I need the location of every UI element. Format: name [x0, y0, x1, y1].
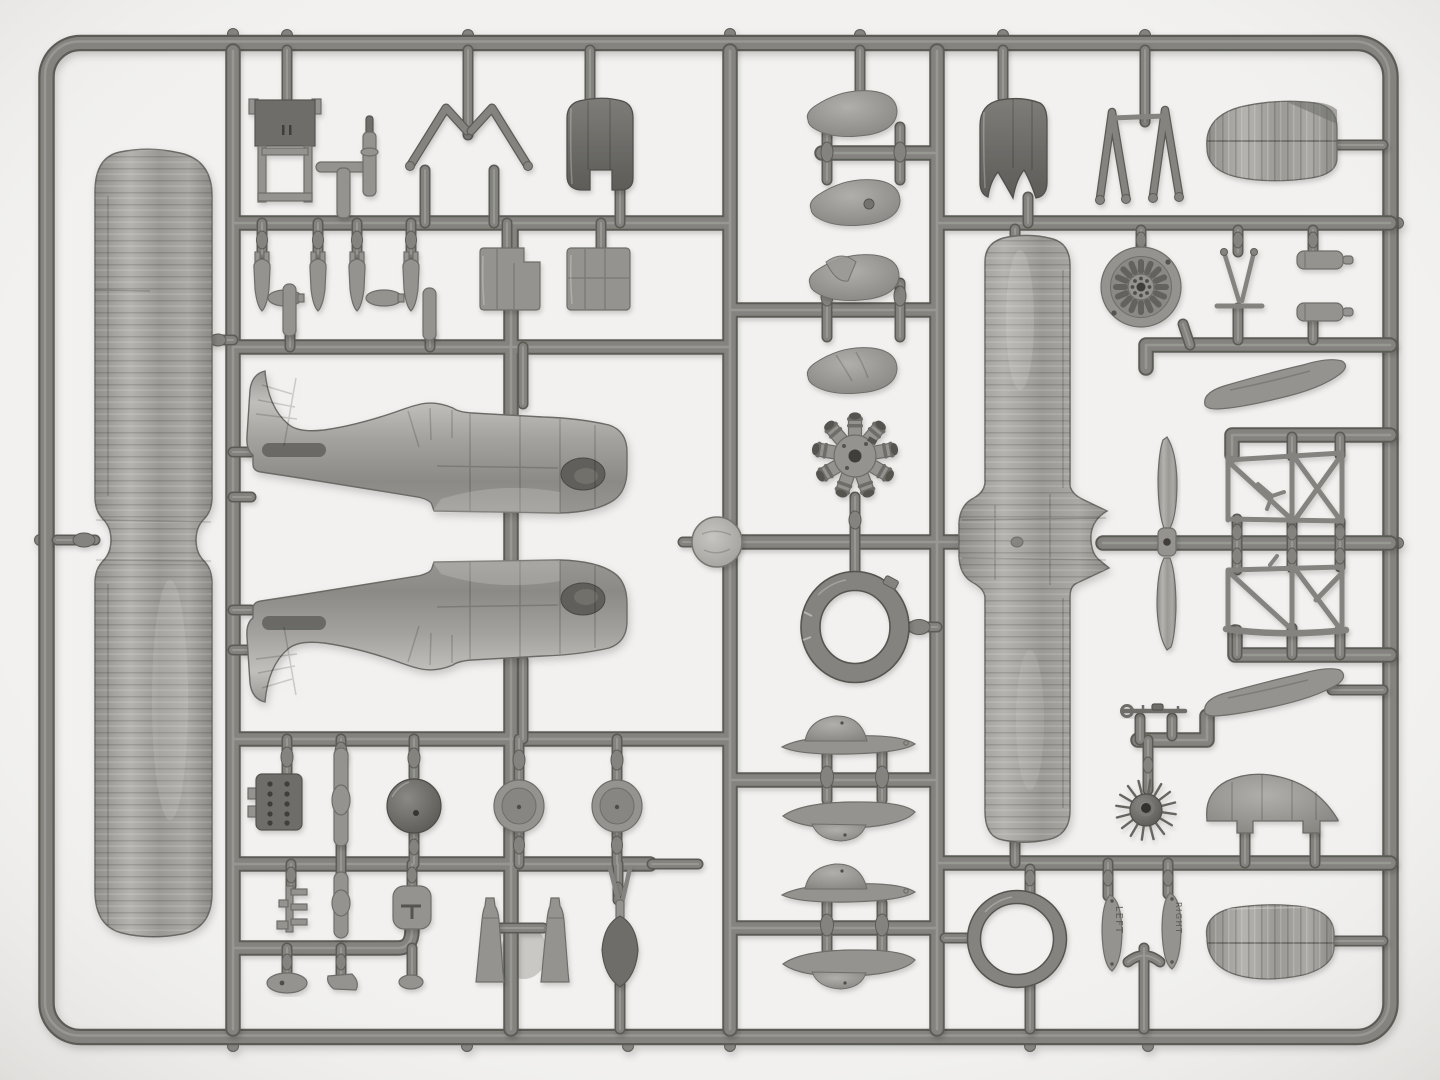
sprue-gate-bulge	[514, 836, 525, 854]
sprue-gate-bulge	[281, 747, 293, 767]
exhaust-pipe-spindle	[332, 748, 350, 846]
left-tag-text: LEFT	[1113, 906, 1124, 934]
seat-cushion-part	[393, 886, 431, 929]
cowling-side-panel-plain	[567, 248, 630, 310]
hub-hole	[1145, 291, 1149, 295]
sprue-gate-bulge	[908, 620, 930, 635]
sprue-gate-bulge	[849, 511, 861, 529]
dark-dome-part	[387, 779, 441, 833]
sprue-gate-disc	[692, 517, 742, 567]
wheel-spoke-slot	[1113, 284, 1128, 290]
sprue-gate-bulge	[1287, 524, 1297, 540]
stabilizer-half-bottom	[1207, 905, 1334, 979]
sprue-photo: LEFT RIGHT	[0, 0, 1440, 1080]
sprue-gate-bulge	[407, 867, 417, 883]
engine-accessory-block	[248, 774, 302, 830]
sprue-gate-bulge	[282, 954, 292, 970]
small-spindle-part	[332, 872, 350, 938]
hub-hole	[1145, 279, 1149, 283]
sprue-gate-bulge	[894, 142, 906, 162]
sprue-gate-bulge	[406, 231, 417, 249]
hub-hole	[1139, 277, 1143, 281]
sprue-gate-bulge	[821, 142, 833, 162]
propeller	[1157, 437, 1177, 650]
lower-wing-part	[95, 149, 212, 937]
sprue-gate-bulge	[409, 839, 419, 855]
sprue-gate-bulge	[1335, 548, 1345, 564]
sprue-gate-bulge	[894, 286, 906, 306]
sprue-gate-bulge	[876, 766, 889, 788]
hub-hole	[1133, 291, 1137, 295]
sprue-gate-bulge	[1335, 524, 1345, 540]
cowling-front-right	[980, 99, 1047, 198]
hub-hole	[1131, 285, 1135, 289]
sprue-gate-bulge	[1103, 870, 1113, 886]
sprue-gate-bulge	[1287, 548, 1297, 564]
sprue-gate-bulge	[352, 231, 363, 249]
sprue-gate-bulge	[1308, 232, 1318, 248]
sprue-gate-bulge	[73, 533, 95, 547]
sprue-gate-bulge	[286, 867, 296, 883]
sprue-gate-bulge	[313, 231, 324, 249]
wheel-spoke-slot	[1154, 284, 1169, 290]
sprue-photo-canvas: LEFT RIGHT	[0, 0, 1440, 1080]
sprue-gate-bulge	[876, 914, 889, 936]
sprue-gate-bulge	[1163, 870, 1173, 886]
sprue-gate-bulge	[821, 766, 834, 788]
sprue-gate-bulge	[1025, 870, 1035, 886]
stabilizer-half-top	[1207, 101, 1337, 181]
sprue-gate-bulge	[1233, 232, 1243, 248]
sprue-gate-bulge	[1136, 232, 1146, 248]
spoked-wheel	[1101, 247, 1181, 327]
sprue-gate-bulge	[408, 748, 420, 768]
sprue-gate-bulge	[513, 750, 525, 770]
sprue-gate-bulge	[1143, 757, 1153, 773]
sprue-gate-bulge	[612, 836, 623, 854]
hub-hole	[1148, 285, 1152, 289]
sprue-gate-bulge	[1232, 548, 1242, 564]
hub-hole	[1139, 294, 1143, 298]
wheel-spoke-slot	[1138, 300, 1144, 315]
sprue-gate-bulge	[257, 231, 268, 249]
wheel-spoke-slot	[1138, 259, 1144, 274]
sprue-gate-bulge	[821, 914, 834, 936]
right-tag-text: RIGHT	[1174, 902, 1183, 935]
sprue-gate-bulge	[1232, 524, 1242, 540]
hub-hole	[1133, 279, 1137, 283]
sprue-gate-bulge	[336, 954, 346, 970]
sprue-gate-bulge	[611, 750, 623, 770]
